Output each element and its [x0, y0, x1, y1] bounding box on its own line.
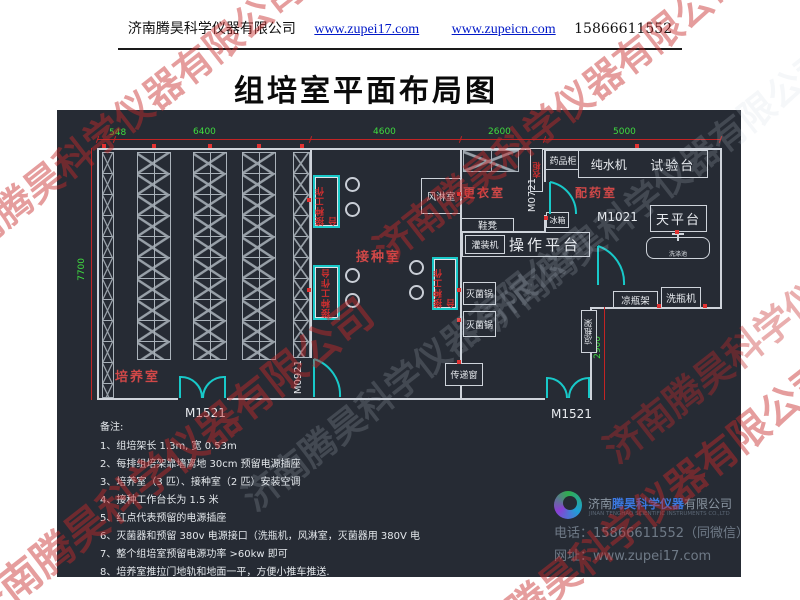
socket-dot [675, 230, 679, 234]
door-m0721-arc [547, 180, 578, 216]
socket-dot [457, 192, 461, 196]
medicine-cabinet-label: 药品柜 [549, 154, 576, 167]
socket-dot [208, 144, 212, 148]
door-label-m0721: M0721 [527, 178, 538, 212]
socket-dot [457, 360, 461, 364]
operation-platform-label: 操作平台 [509, 234, 581, 255]
stool [345, 268, 360, 283]
room-label-culture: 培养室 [115, 366, 160, 385]
socket-dot [102, 144, 106, 148]
room-label-inoculation: 接种室 [356, 246, 401, 265]
culture-rack [137, 152, 171, 360]
footer-company-prefix: 济南 [588, 497, 612, 511]
note-line: 6、灭菌器和预留 380v 电源接口（洗瓶机，风淋室，灭菌器用 380V 电 [100, 527, 420, 542]
cad-canvas: 548 6400 4600 2600 5000 7700 2900 接种工作台 … [57, 110, 741, 577]
double-door-culture [178, 373, 227, 399]
culture-rack [102, 152, 114, 398]
socket-dot [152, 144, 156, 148]
pass-window-label: 传递窗 [450, 368, 477, 381]
wall-bottom-b [227, 398, 545, 400]
socket-dot [457, 288, 461, 292]
air-shower-label: 风淋室 [427, 189, 456, 203]
dim-line-right [604, 307, 605, 400]
sterilizer-label: 灭菌锅 [466, 287, 493, 300]
dim-548: 548 [109, 128, 126, 138]
socket-dot [307, 198, 311, 202]
culture-rack [242, 152, 276, 360]
sterilizer-label: 灭菌锅 [466, 318, 493, 331]
balance-table: 天平台 [650, 205, 707, 232]
notes-title: 备注: [100, 418, 123, 433]
note-line: 2、每排组培架靠墙离地 30cm 预留电源插座 [100, 455, 301, 470]
footer-company-english: JINAN TENGHAO SCIENTIFIC INSTRUMENTS CO.… [589, 511, 730, 517]
note-line: 7、整个组培室预留电源功率 >60kw 即可 [100, 545, 288, 560]
workbench-label: 接种工作台 [320, 268, 333, 318]
socket-dot [257, 144, 261, 148]
shoe-bench: 鞋凳 [461, 218, 514, 232]
dim-4600: 4600 [373, 127, 396, 137]
wall-bottom-a [97, 398, 178, 400]
page-title: 组培室平面布局图 [0, 66, 732, 110]
socket-dot [544, 216, 548, 220]
bottle-rack-horizontal: 凉瓶架 [613, 291, 658, 308]
bottle-rack-label: 凉瓶架 [583, 319, 595, 345]
header-company: 济南腾昊科学仪器有限公司 [128, 21, 296, 37]
note-line: 1、组培架长 1.3m, 宽 0.53m [100, 437, 237, 452]
wall-left [97, 148, 99, 400]
inoculation-workbench: 接种工作台 [313, 265, 340, 320]
dim-tick [719, 136, 722, 143]
culture-rack [293, 152, 310, 358]
balance-table-label: 天平台 [656, 209, 701, 228]
wall-right [720, 148, 722, 309]
wardrobe-label: 衣柜 [531, 162, 542, 178]
socket-dot [300, 144, 304, 148]
footer-website[interactable]: 网址：www.zupei17.com [554, 545, 711, 564]
header-link-zupeicn[interactable]: www.zupeicn.com [452, 22, 556, 37]
socket-dot [457, 318, 461, 322]
header-phone: 15866611552 [574, 21, 672, 37]
filling-machine-label: 灌装机 [471, 238, 498, 251]
inoculation-workbench: 接种工作台 [432, 257, 458, 310]
note-line: 5、红点代表预留的电源插座 [100, 509, 226, 524]
pure-water-label: 纯水机 [591, 156, 627, 173]
sterilizer-2: 灭菌锅 [463, 311, 496, 337]
test-bench: 纯水机 试验台 [578, 150, 708, 178]
socket-dot [657, 304, 661, 308]
door-label-m1021: M1021 [597, 210, 638, 224]
bottle-washer-label: 洗瓶机 [666, 290, 696, 305]
sterilizer-1: 灭菌锅 [463, 282, 496, 305]
wash-sink-label: 洗涤池 [669, 249, 687, 258]
bottle-rack-vertical: 凉瓶架 [581, 310, 597, 353]
page-header: 济南腾昊科学仪器有限公司 www.zupei17.com www.zupeicn… [0, 18, 800, 38]
socket-dot [635, 144, 639, 148]
culture-rack [193, 152, 227, 360]
door-m1021-arc [595, 244, 626, 287]
door-m0921-arc [311, 357, 342, 399]
dim-6400: 6400 [193, 127, 216, 137]
footer-phone: 电话：15866611552（同微信） [554, 522, 741, 541]
dim-7700: 7700 [77, 258, 87, 281]
company-logo-icon [554, 491, 582, 519]
door-label-m1521-right: M1521 [551, 407, 592, 421]
footer-company-name: 济南腾昊科学仪器有限公司 [588, 495, 732, 512]
header-divider [118, 48, 682, 50]
page: 济南腾昊科学仪器有限公司 www.zupei17.com www.zupeicn… [0, 0, 800, 600]
dim-5000: 5000 [613, 127, 636, 137]
note-line: 3、培养室（3 匹）、接种室（2 匹）安装空调 [100, 473, 300, 488]
workbench-label: 接种工作台 [432, 259, 458, 308]
socket-dot [307, 288, 311, 292]
stool [345, 177, 360, 192]
wall-culture-inoculation [310, 148, 312, 358]
footer-company-suffix: 有限公司 [684, 497, 732, 511]
double-door-dispensing [545, 374, 591, 399]
door-label-m1521-left: M1521 [185, 406, 226, 420]
stool [345, 293, 360, 308]
shoe-bench-label: 鞋凳 [478, 218, 497, 232]
dim-2600: 2600 [488, 127, 511, 137]
filling-machine: 灌装机 [465, 235, 505, 254]
medicine-cabinet: 药品柜 [545, 150, 581, 170]
air-shower: 风淋室 [421, 178, 461, 214]
note-line: 4、接种工作台长为 1.5 米 [100, 491, 219, 506]
stool [409, 285, 424, 300]
note-line: 8、培养室推拉门地轨和地面一平，方便小推车推送. [100, 563, 330, 577]
room-label-changing: 更衣室 [463, 184, 505, 201]
stool [409, 260, 424, 275]
socket-dot [703, 304, 707, 308]
footer-company-highlight: 腾昊科学仪器 [612, 497, 684, 511]
bottle-rack-label: 凉瓶架 [621, 293, 650, 307]
bottle-washer: 洗瓶机 [661, 287, 701, 308]
pass-window: 传递窗 [445, 363, 483, 386]
workbench-label: 接种工作台 [314, 177, 340, 226]
test-bench-label: 试验台 [650, 155, 695, 174]
dim-line-top [97, 139, 721, 140]
dim-line-left [91, 148, 92, 400]
inoculation-workbench: 接种工作台 [313, 175, 340, 228]
header-link-zupei17[interactable]: www.zupei17.com [314, 22, 419, 37]
stool [345, 202, 360, 217]
locker-cabinet [463, 150, 519, 172]
fridge-label: 冰箱 [550, 215, 566, 226]
door-label-m0921: M0921 [293, 360, 304, 394]
room-label-dispensing: 配药室 [575, 184, 617, 201]
